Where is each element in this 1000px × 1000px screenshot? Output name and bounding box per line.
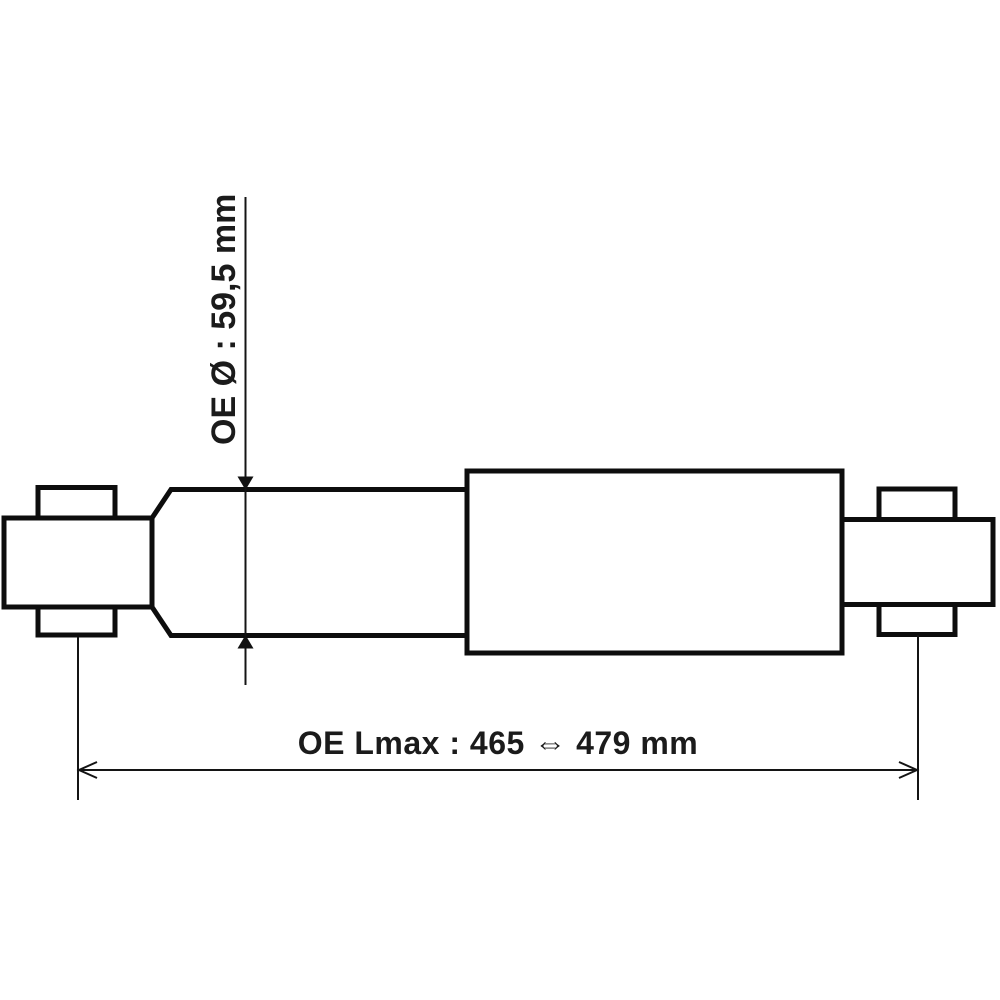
- length-dimension-label: OE Lmax : 465 ⇔ 479 mm: [78, 725, 918, 761]
- left-eye-bottom-tab: [38, 607, 115, 635]
- part-outline: [4, 471, 993, 653]
- dust-cover: [467, 471, 842, 653]
- right-eye-body: [842, 520, 993, 605]
- cylinder-bottom-edge: [152, 607, 467, 636]
- shock-absorber-diagram: [0, 0, 1000, 1000]
- right-eye-bottom-tab: [879, 605, 955, 635]
- diameter-dimension-label: OE Ø : 59,5 mm: [202, 193, 246, 445]
- technical-drawing-canvas: OE Ø : 59,5 mm OE Lmax : 465 ⇔ 479 mm: [0, 0, 1000, 1000]
- length-dimension: [78, 635, 918, 800]
- left-eye-top-tab: [38, 488, 115, 519]
- cylinder-top-edge: [152, 490, 467, 519]
- left-eye-body: [4, 518, 152, 607]
- right-eye-top-tab: [879, 489, 955, 520]
